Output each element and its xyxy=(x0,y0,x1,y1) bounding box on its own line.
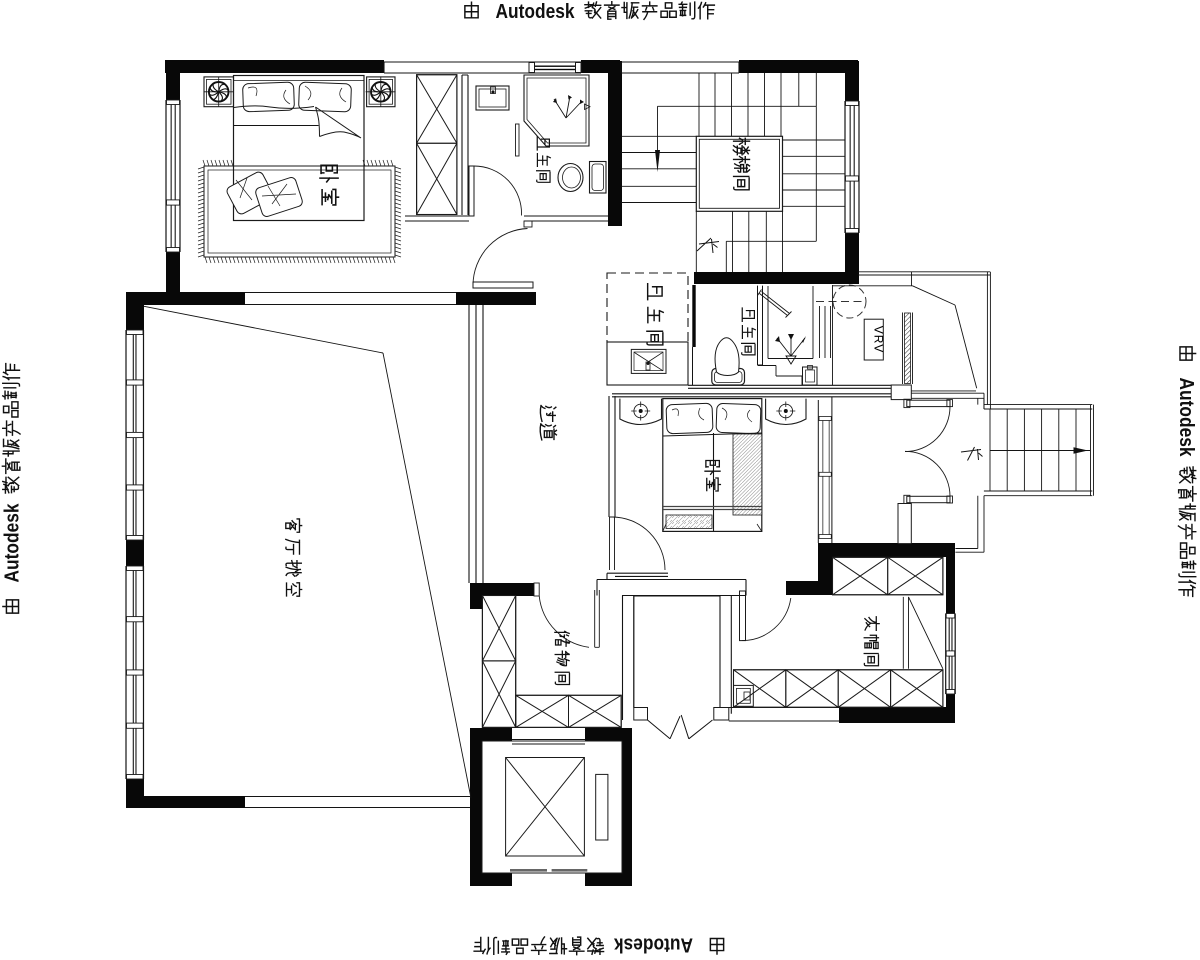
svg-text:Autodesk: Autodesk xyxy=(613,934,693,956)
svg-text:Autodesk: Autodesk xyxy=(1175,378,1197,458)
svg-text:Autodesk: Autodesk xyxy=(496,1,576,23)
svg-text:VRV: VRV xyxy=(871,326,885,353)
svg-text:Autodesk: Autodesk xyxy=(2,503,24,583)
